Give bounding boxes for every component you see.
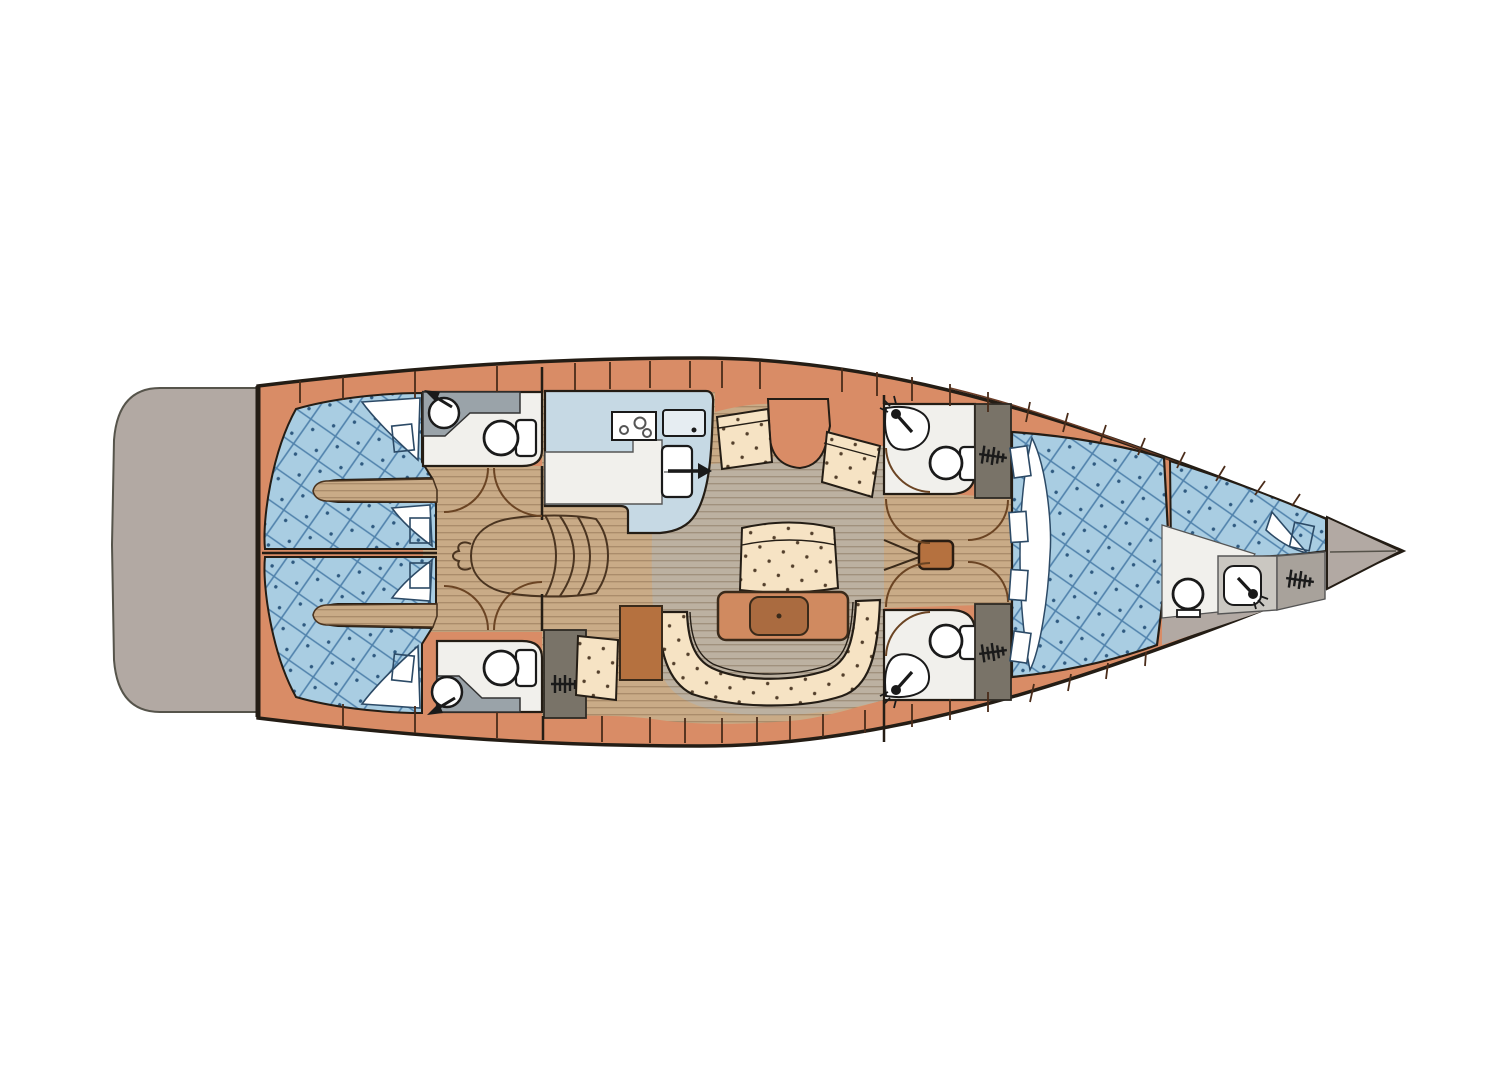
pillow bbox=[1010, 446, 1031, 478]
mid-head-port-locker bbox=[975, 404, 1011, 498]
mid-head-port bbox=[880, 396, 979, 494]
bow-stowage bbox=[1327, 517, 1401, 589]
mid-head-starboard bbox=[880, 610, 979, 708]
pillow bbox=[1009, 569, 1028, 600]
salon-table bbox=[718, 592, 848, 640]
yacht-layout-page bbox=[0, 0, 1492, 1080]
salon-bench-backrest bbox=[740, 523, 838, 593]
aft-head-starboard bbox=[427, 641, 542, 715]
toilet-icon bbox=[1173, 579, 1203, 617]
nav-locker bbox=[620, 606, 662, 680]
pillow bbox=[1010, 631, 1031, 663]
bow-cabin bbox=[1162, 461, 1401, 645]
pillow bbox=[1009, 511, 1028, 542]
settee-left-bench bbox=[576, 636, 618, 700]
settee-port-aft bbox=[717, 409, 772, 469]
cabin-floor-wedge bbox=[313, 604, 437, 627]
bow-shower bbox=[1224, 566, 1268, 609]
bow-centerline bbox=[1330, 551, 1396, 552]
toilet-icon bbox=[484, 420, 536, 456]
toilet-icon bbox=[930, 447, 979, 480]
cabin-floor-wedge bbox=[313, 479, 437, 502]
toilet-icon bbox=[484, 650, 536, 686]
owners-cabin bbox=[1009, 432, 1169, 677]
mid-head-starboard-locker bbox=[975, 604, 1011, 700]
hullside-cabinet bbox=[768, 399, 830, 468]
galley-sink-icon bbox=[663, 410, 705, 436]
swim-platform bbox=[112, 388, 258, 712]
yacht-layout-plan bbox=[0, 0, 1492, 1080]
toilet-icon bbox=[930, 625, 979, 659]
aft-head-port bbox=[423, 390, 542, 466]
mast-post bbox=[919, 541, 953, 569]
stove-burners-icon bbox=[612, 412, 656, 440]
